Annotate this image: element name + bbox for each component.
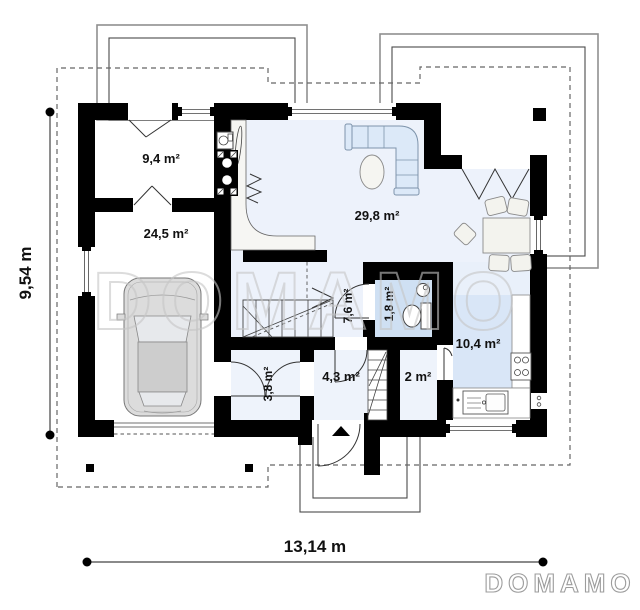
stove-icon	[511, 353, 531, 380]
brand-logo: DOMAMO	[484, 568, 635, 598]
garage-door	[114, 420, 214, 437]
wall-step-h	[441, 155, 462, 169]
porch-pillar	[245, 464, 253, 472]
entrance-door	[312, 420, 364, 466]
pantry-floor	[400, 350, 437, 420]
entry-pillar	[364, 413, 380, 475]
entry-stub	[298, 437, 312, 445]
room-label-living: 29,8 m²	[355, 208, 400, 223]
dimension-width: 13,14 m	[83, 537, 548, 567]
room-label-entry-hall: 4,3 m²	[322, 369, 360, 384]
watermark: DOMAMO	[93, 256, 524, 347]
room-label-garage: 24,5 m²	[144, 226, 189, 241]
floor-plan: 9,4 m² 24,5 m² 29,8 m² 7,6 m² 1,8 m² 10,…	[0, 0, 640, 610]
boiler-icon	[217, 132, 233, 149]
window	[178, 103, 214, 120]
room-label-vestibule: 9,4 m²	[142, 151, 180, 166]
vestibule-door-swing	[129, 120, 171, 137]
car-rear-window	[139, 392, 186, 406]
window	[446, 420, 516, 437]
room-label-wardrobe: 3,8 m²	[261, 367, 275, 402]
wall-step-v	[424, 120, 441, 169]
chimney-icon	[216, 150, 238, 196]
wall-pantry-left	[387, 337, 400, 420]
sink-icon	[457, 391, 509, 414]
chair	[507, 197, 529, 216]
dimension-depth: 9,54 m	[16, 108, 55, 440]
wardrobe-strip	[368, 350, 387, 420]
porch-pillar	[86, 464, 94, 472]
depth-dimension-label: 9,54 m	[16, 247, 35, 300]
dining-table	[483, 218, 530, 253]
width-dimension-label: 13,14 m	[284, 537, 346, 556]
car-roof	[138, 342, 187, 392]
vent-icon	[531, 393, 547, 409]
coffee-table	[360, 155, 384, 189]
room-label-pantry: 2 m²	[405, 369, 432, 384]
window	[288, 103, 396, 120]
window	[530, 216, 547, 254]
terrace-pillar	[533, 108, 546, 121]
